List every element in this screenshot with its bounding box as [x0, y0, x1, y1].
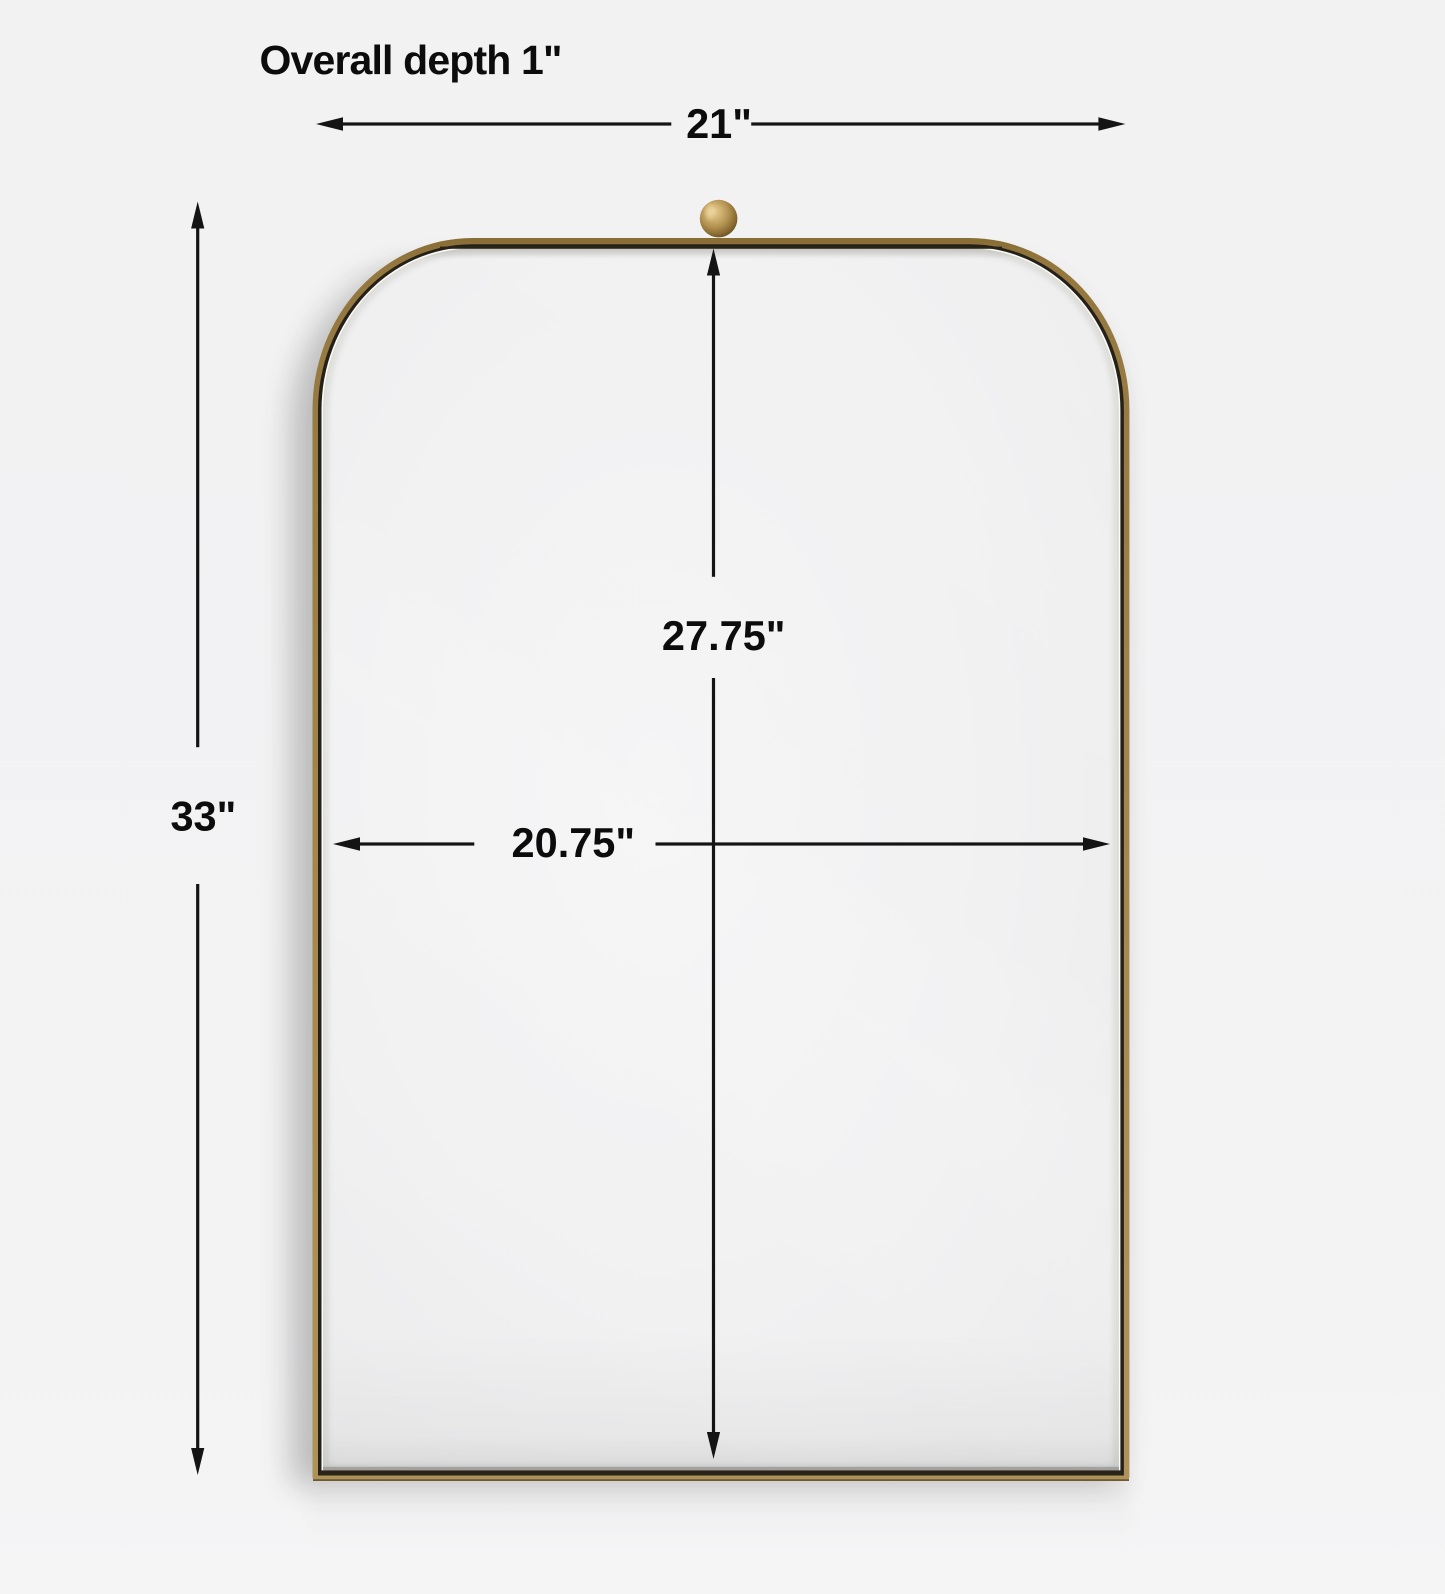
svg-text:33": 33": [170, 793, 236, 840]
svg-text:20.75": 20.75": [512, 819, 636, 866]
svg-text:Overall depth 1": Overall depth 1": [260, 37, 562, 83]
svg-text:21": 21": [686, 100, 752, 147]
svg-text:27.75": 27.75": [662, 612, 786, 659]
